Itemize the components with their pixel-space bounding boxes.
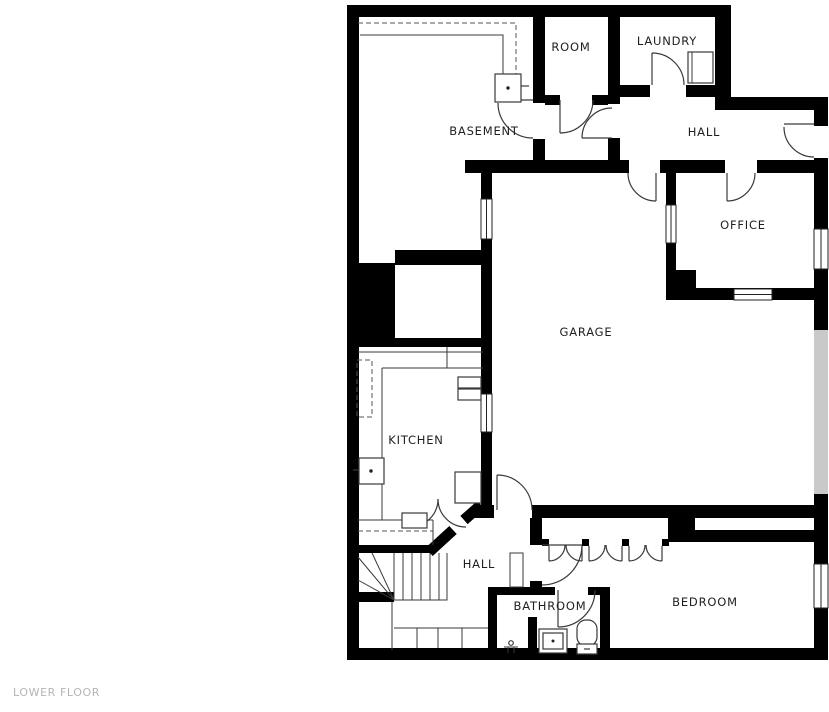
bedroom-east-window [814, 564, 828, 608]
washer [688, 52, 713, 83]
floor-label: LOWER FLOOR [13, 686, 100, 699]
office-east-window [814, 229, 828, 269]
office-west-window [666, 205, 676, 243]
office-south-window [734, 289, 772, 300]
floor-plan-svg: BASEMENTROOMLAUNDRYHALLOFFICEGARAGEKITCH… [0, 0, 829, 712]
kitchen-pass-window [481, 394, 492, 432]
bathroom-sink [539, 629, 567, 653]
room-labels: BASEMENTROOMLAUNDRYHALLOFFICEGARAGEKITCH… [388, 34, 766, 613]
room-label-hall-upper: HALL [688, 125, 721, 139]
room-label-office: OFFICE [720, 218, 766, 232]
fridge-space [357, 360, 372, 417]
duct [510, 553, 523, 587]
room-label-kitchen: KITCHEN [388, 433, 443, 447]
room-label-bathroom: BATHROOM [514, 599, 587, 613]
room-label-garage: GARAGE [560, 325, 613, 339]
room-label-laundry: LAUNDRY [637, 34, 697, 48]
basement-fixtures [358, 23, 529, 102]
room-label-basement: BASEMENT [449, 124, 519, 138]
kitchen-shelf [458, 377, 481, 388]
basement-garage-window [481, 199, 492, 239]
garage-door-opening [814, 330, 828, 494]
water-heater [495, 74, 529, 102]
kitchen-shelf [458, 389, 481, 400]
floor-plan-page: BASEMENTROOMLAUNDRYHALLOFFICEGARAGEKITCH… [0, 0, 829, 712]
oven-block [455, 472, 481, 503]
room-label-bedroom: BEDROOM [672, 595, 738, 609]
kitchen-sink [402, 513, 427, 528]
laundry-fixtures [688, 52, 713, 83]
room-label-hall-lower: HALL [463, 557, 496, 571]
room-label-room: ROOM [551, 40, 590, 54]
toilet [577, 620, 597, 654]
